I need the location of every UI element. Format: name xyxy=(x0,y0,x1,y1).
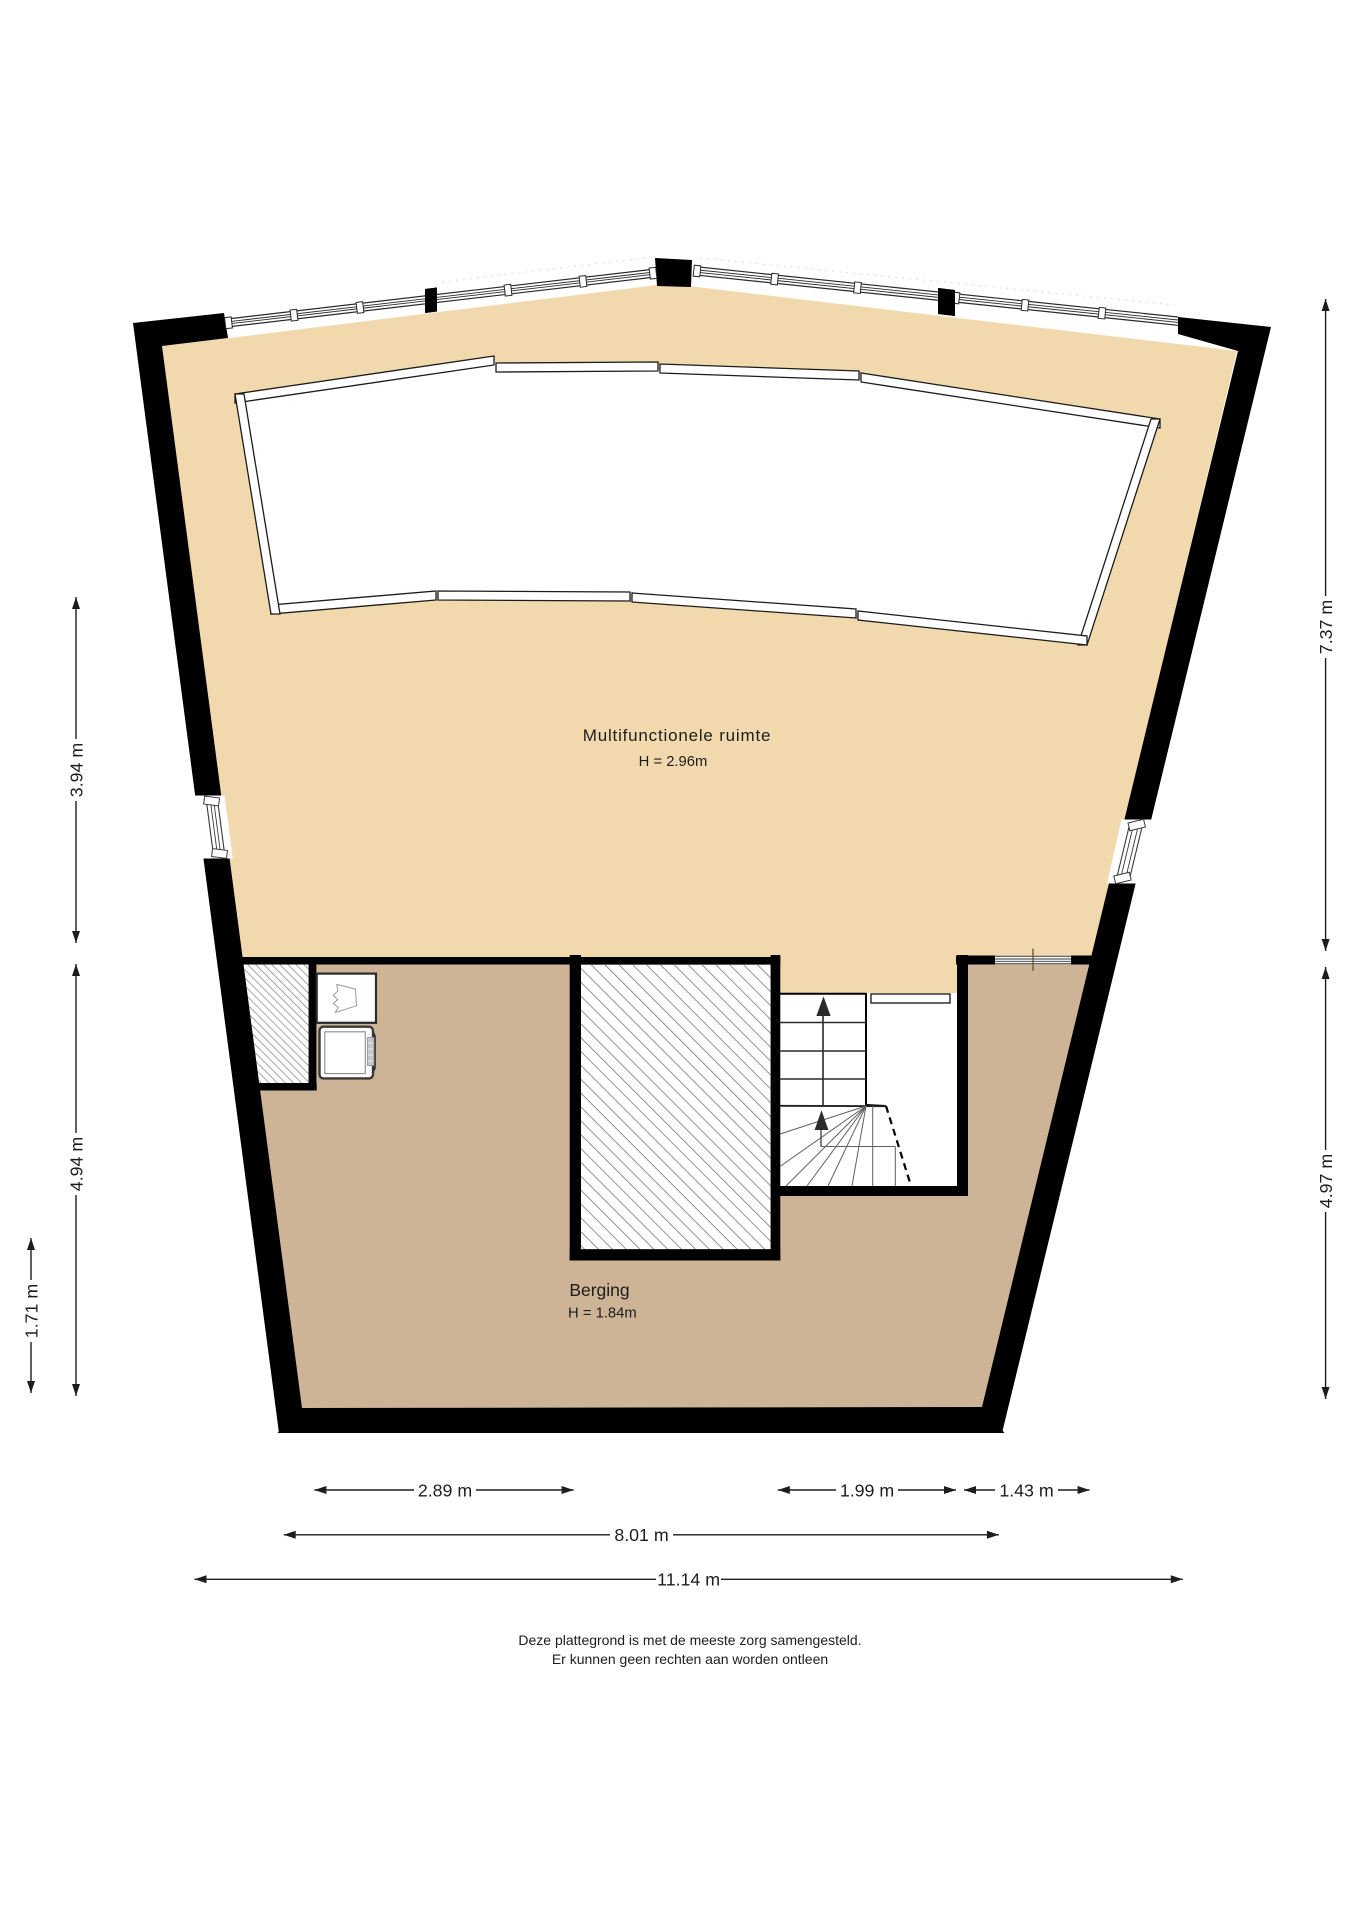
svg-text:H = 2.96m: H = 2.96m xyxy=(639,754,708,770)
svg-text:4.94 m: 4.94 m xyxy=(66,1137,86,1191)
svg-text:1.71 m: 1.71 m xyxy=(21,1284,41,1338)
svg-text:1.99 m: 1.99 m xyxy=(840,1480,894,1500)
svg-text:4.97 m: 4.97 m xyxy=(1316,1154,1336,1208)
svg-text:Er kunnen geen rechten aan wor: Er kunnen geen rechten aan worden ontlee… xyxy=(552,1651,828,1667)
svg-text:1.43 m: 1.43 m xyxy=(999,1480,1053,1500)
svg-text:H = 1.84m: H = 1.84m xyxy=(568,1306,637,1322)
svg-text:7.37 m: 7.37 m xyxy=(1316,600,1336,654)
svg-text:Multifunctionele ruimte: Multifunctionele ruimte xyxy=(583,726,771,745)
svg-text:3.94 m: 3.94 m xyxy=(66,743,86,797)
svg-text:2.89 m: 2.89 m xyxy=(418,1480,472,1500)
svg-text:8.01 m: 8.01 m xyxy=(614,1525,668,1545)
svg-text:11.14 m: 11.14 m xyxy=(657,1570,720,1590)
svg-text:Deze plattegrond is met de mee: Deze plattegrond is met de meeste zorg s… xyxy=(518,1632,861,1648)
svg-text:Berging: Berging xyxy=(569,1280,629,1300)
